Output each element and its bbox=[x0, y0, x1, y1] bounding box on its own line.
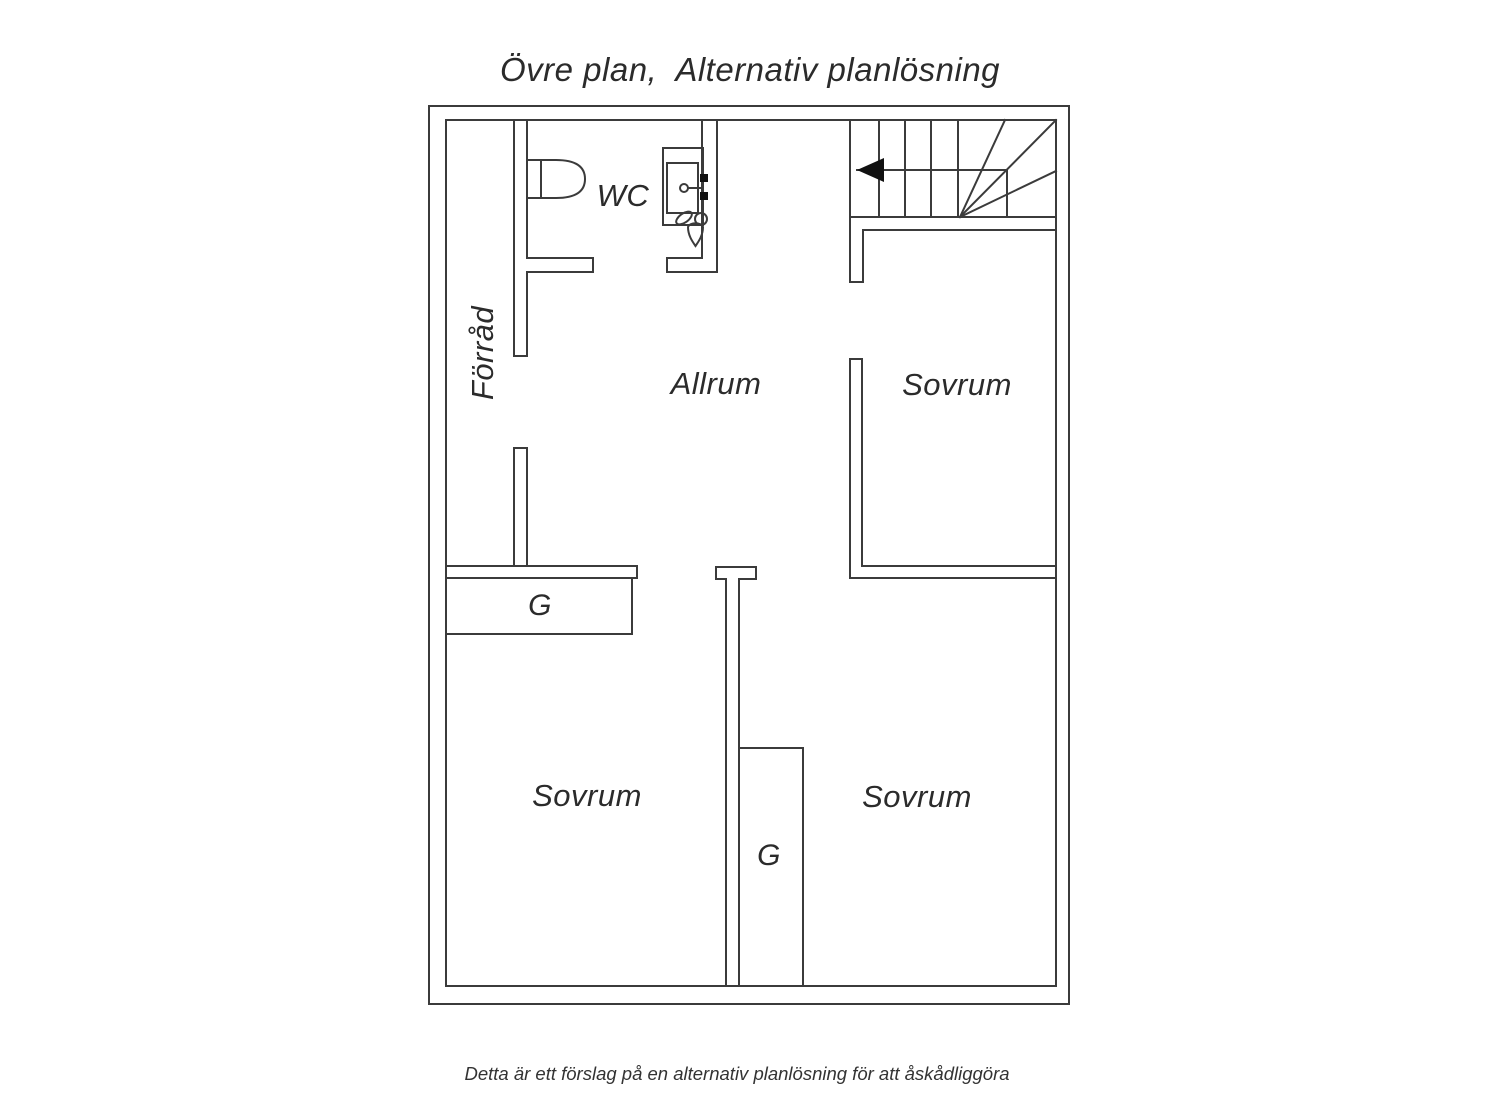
stairs-direction-arrow-icon bbox=[857, 158, 884, 182]
plan-outer-border bbox=[429, 106, 1069, 1004]
room-label-sovrum-bottom-right: Sovrum bbox=[862, 779, 972, 815]
floor-plan-page: Övre plan, Alternativ planlösning WC För… bbox=[0, 0, 1500, 1096]
room-label-wc: WC bbox=[597, 178, 650, 214]
closet-label-middle: G bbox=[757, 839, 781, 873]
forrad-wall bbox=[514, 120, 527, 566]
central-dividing-wall bbox=[716, 567, 756, 986]
closet-left-wall bbox=[446, 566, 637, 578]
wall-below-stairs bbox=[850, 217, 1056, 282]
plan-title: Övre plan, Alternativ planlösning bbox=[500, 51, 1000, 89]
room-label-sovrum-bottom-left: Sovrum bbox=[532, 778, 642, 814]
room-label-allrum: Allrum bbox=[671, 366, 762, 402]
stairs bbox=[850, 120, 1056, 217]
toilet-icon bbox=[527, 160, 585, 198]
disclaimer-line-1: Detta är ett förslag på en alternativ pl… bbox=[446, 1061, 1028, 1087]
room-label-forrad: Förråd bbox=[465, 306, 501, 400]
perimeter-walls bbox=[446, 120, 1056, 986]
room-label-sovrum-top-right: Sovrum bbox=[902, 367, 1012, 403]
closet-label-left: G bbox=[528, 589, 552, 623]
wc-south-walls bbox=[527, 258, 717, 272]
floor-plan-drawing bbox=[0, 0, 1500, 1096]
disclaimer-text: Detta är ett förslag på en alternativ pl… bbox=[446, 1010, 1028, 1096]
